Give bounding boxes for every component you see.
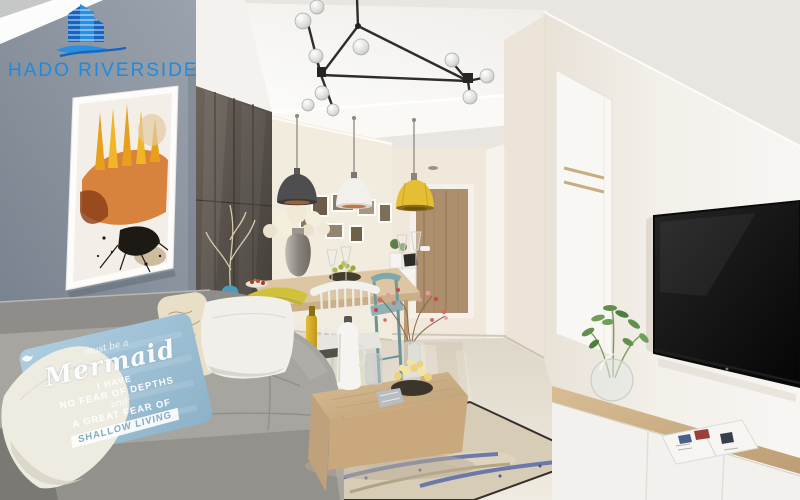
white-pillow-right bbox=[201, 296, 294, 379]
scene-canvas: HADO RIVERSIDE bbox=[0, 0, 800, 500]
ceiling-spotlight bbox=[428, 166, 438, 170]
glass-cup bbox=[366, 354, 382, 384]
entry-wardrobe bbox=[556, 70, 612, 356]
door-handle bbox=[420, 246, 430, 251]
hallway-door-jamb bbox=[486, 144, 504, 356]
hall-decor bbox=[403, 253, 417, 266]
interior-render-living-room: HADO RIVERSIDE bbox=[0, 0, 800, 500]
tv-logo-dot bbox=[726, 368, 729, 371]
tv-shadow bbox=[646, 216, 654, 354]
abstract-painting bbox=[66, 86, 178, 298]
glass-sphere-vase bbox=[591, 359, 633, 401]
logo-text: HADO RIVERSIDE bbox=[8, 60, 199, 81]
